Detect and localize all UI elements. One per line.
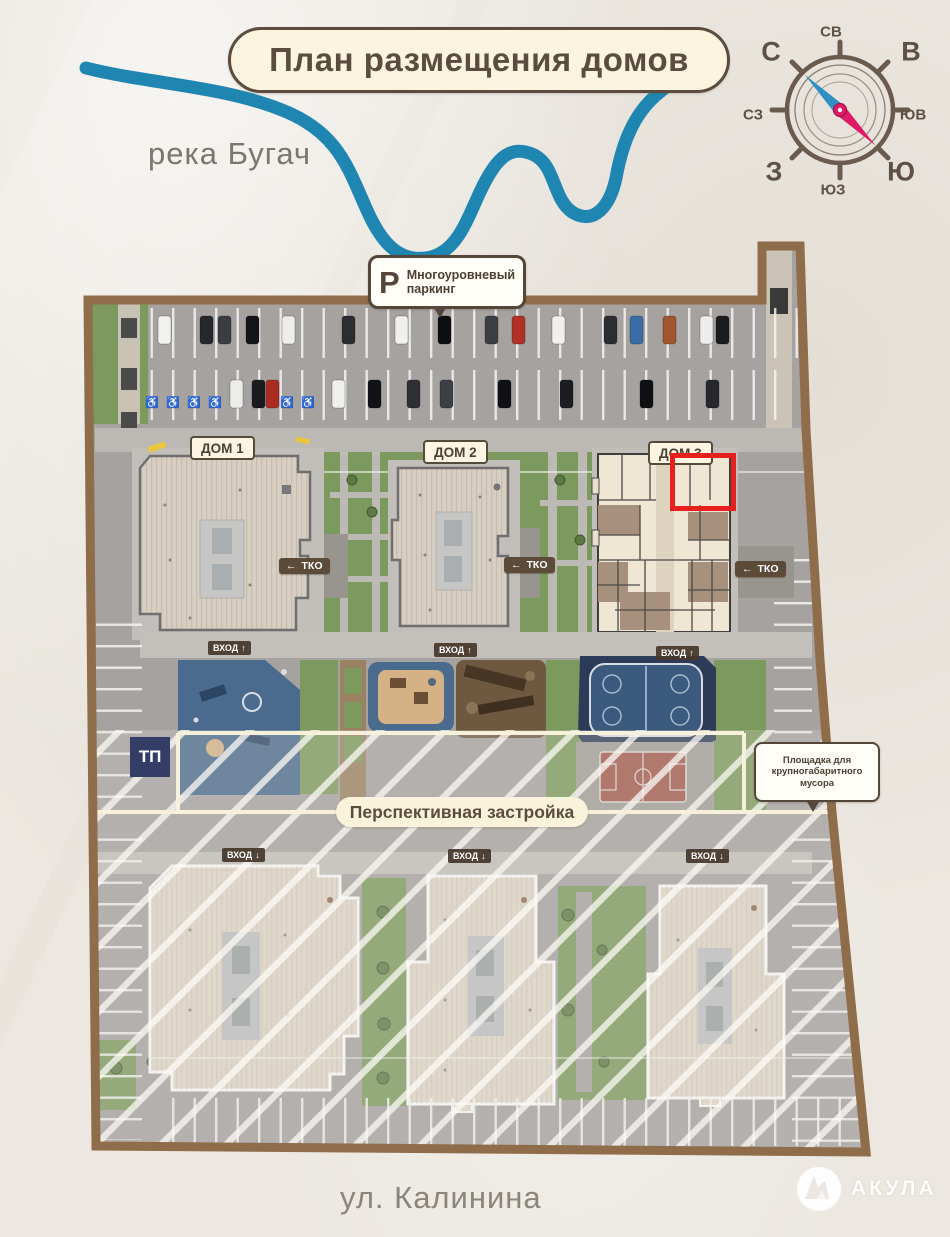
entrance-tag-future3: ВХОД↓ (686, 849, 729, 863)
brand-watermark: АКУЛА (796, 1166, 937, 1212)
parking-p-icon: Р (379, 267, 400, 298)
parking-callout-text: Многоуровневый паркинг (407, 268, 515, 297)
down-arrow-icon: ↓ (255, 850, 260, 860)
green-strip-topleft (92, 302, 148, 430)
down-arrow-icon: ↓ (719, 851, 724, 861)
compass-w: З (766, 157, 783, 188)
entrance-tag-future2: ВХОД↓ (448, 849, 491, 863)
entrance-tag-future1: ВХОД↓ (222, 848, 265, 862)
building-dom-1 (132, 437, 324, 640)
entrance-tag-dom3: ВХОД↑ (656, 646, 699, 660)
site-plan-graphic: ♿♿ ♿♿ ♿♿ (0, 0, 950, 1237)
svg-text:♿: ♿ (145, 396, 159, 409)
compass-e: В (901, 37, 921, 68)
bulky-waste-callout: Площадка для крупногабаритного мусора (754, 742, 880, 802)
dom-2-label[interactable]: ДОМ 2 (423, 440, 488, 464)
river-label: река Бугач (148, 136, 311, 172)
highlighted-apartment[interactable] (670, 453, 736, 511)
tko-tag-3: ←ТКО (735, 561, 786, 577)
entrance-tag-dom2: ВХОД↑ (434, 643, 477, 657)
entrance-tag-dom1: ВХОД↑ (208, 641, 251, 655)
callout-pointer (806, 800, 820, 812)
left-arrow-icon: ← (511, 559, 522, 571)
future-zone-hatch (88, 730, 870, 1156)
compass-sw: ЮЗ (821, 182, 846, 199)
playground-wooden (456, 660, 546, 738)
svg-text:♿: ♿ (187, 396, 201, 409)
compass-se: ЮВ (900, 107, 926, 124)
svg-text:♿: ♿ (280, 396, 294, 409)
up-arrow-icon: ↑ (241, 643, 246, 653)
up-arrow-icon: ↑ (689, 648, 694, 658)
compass-n: С (761, 37, 781, 68)
left-arrow-icon: ← (286, 560, 297, 572)
down-arrow-icon: ↓ (481, 851, 486, 861)
tko-tag-1: ←ТКО (279, 558, 330, 574)
up-arrow-icon: ↑ (467, 645, 472, 655)
site-area: ♿♿ ♿♿ ♿♿ (88, 246, 870, 1156)
callout-pointer (433, 306, 447, 318)
page-title: План размещения домов (228, 27, 730, 93)
playground-sand (368, 662, 454, 732)
tko-tag-2: ←ТКО (504, 557, 555, 573)
compass-s: Ю (887, 157, 915, 188)
parking-callout: Р Многоуровневый паркинг (368, 255, 526, 309)
shark-logo-icon (796, 1166, 842, 1212)
brand-watermark-text: АКУЛА (851, 1177, 937, 1201)
perspective-label: Перспективная застройка (336, 797, 588, 827)
svg-text:♿: ♿ (301, 396, 315, 409)
compass-ne: СВ (820, 24, 842, 41)
compass-nw: СЗ (743, 107, 763, 124)
tp-substation-label: ТП (130, 737, 170, 777)
building-dom-2 (388, 460, 520, 636)
svg-text:♿: ♿ (166, 396, 180, 409)
dom-1-label[interactable]: ДОМ 1 (190, 436, 255, 460)
svg-text:♿: ♿ (208, 396, 222, 409)
street-label: ул. Калинина (340, 1180, 542, 1216)
left-arrow-icon: ← (742, 563, 753, 575)
